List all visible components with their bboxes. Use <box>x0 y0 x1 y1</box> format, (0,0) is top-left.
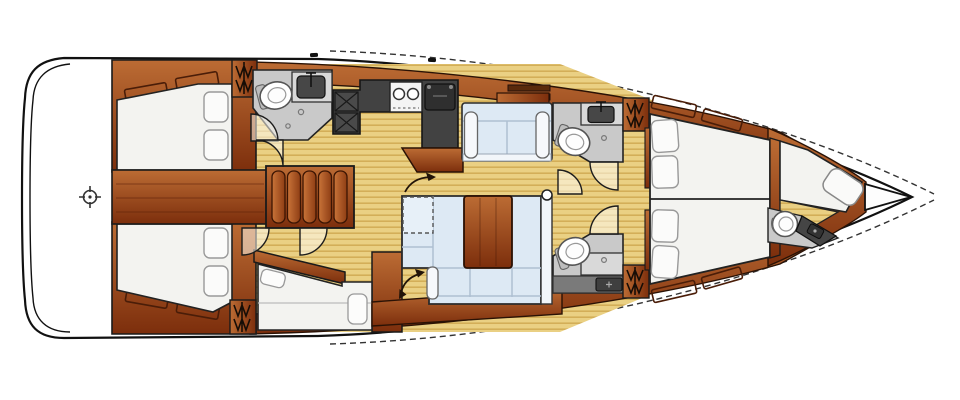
settee-wood-back <box>497 93 549 103</box>
wardrobe-icon <box>230 300 256 334</box>
armrest <box>536 112 549 158</box>
salon-forward-settee <box>462 93 552 161</box>
wardrobe-icon <box>623 98 649 131</box>
boat-floor-plan <box>0 0 960 400</box>
u-settee-back-trim <box>541 196 552 304</box>
pillow <box>204 130 228 160</box>
aft-cabin-starboard <box>112 222 256 334</box>
deck-cleat-icon <box>428 58 436 63</box>
companionway <box>112 166 354 228</box>
pillow <box>651 210 678 243</box>
engine-box-wood-band <box>112 170 268 224</box>
pillow <box>651 119 679 153</box>
wood-slat <box>508 85 550 91</box>
pillow <box>651 156 678 189</box>
stove-icon <box>390 82 422 112</box>
bow-cabin <box>768 141 911 248</box>
salon-table <box>464 196 512 268</box>
toilet-icon <box>772 212 798 237</box>
locker-icon <box>335 92 358 111</box>
armrest <box>465 112 478 158</box>
armrest <box>427 267 438 299</box>
deck-cleat-icon <box>310 53 318 57</box>
aft-cabin-port <box>112 60 257 172</box>
pillow <box>651 245 679 279</box>
floor-plan-svg <box>0 0 960 400</box>
pillow <box>204 266 228 296</box>
drawer-handle <box>813 229 816 232</box>
convertible-section-dashed <box>403 197 433 233</box>
pillow <box>348 294 367 324</box>
pillow <box>204 228 228 258</box>
table-knob <box>542 190 552 200</box>
pillow <box>204 92 228 122</box>
companionway-steps <box>272 171 347 223</box>
locker-icon <box>335 113 358 132</box>
galley-sink-icon <box>425 84 455 110</box>
